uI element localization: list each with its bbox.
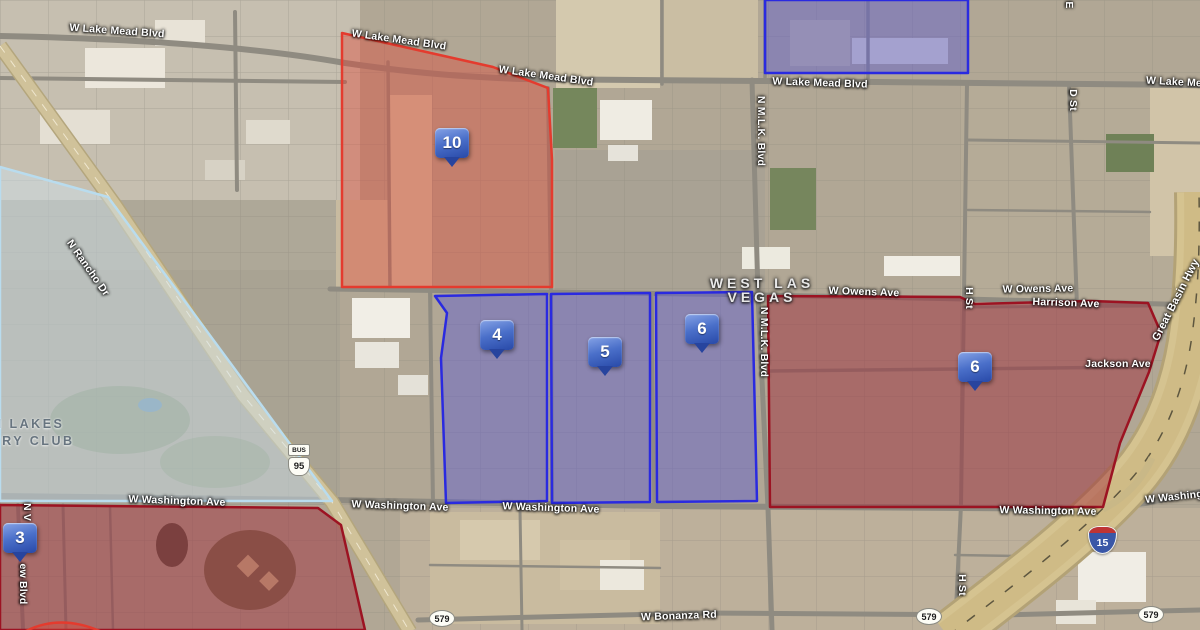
region-overlay-blue-5[interactable] <box>551 293 650 503</box>
us-route-95-shield: 95 <box>288 457 310 476</box>
map-marker-4[interactable]: 4 <box>480 320 514 350</box>
route-579-shield: 579 <box>916 608 942 625</box>
region-overlay-darkred-southwest[interactable] <box>0 505 365 630</box>
bus-95-shield: BUS 95 <box>288 444 310 476</box>
map-viewport[interactable]: W Lake Mead Blvd W Lake Mead Blvd W Lake… <box>0 0 1200 630</box>
map-marker-5[interactable]: 5 <box>588 337 622 367</box>
region-overlay-darkred-east[interactable] <box>768 296 1161 507</box>
route-579-shield: 579 <box>1138 606 1164 623</box>
map-marker-10[interactable]: 10 <box>435 128 469 158</box>
bus-banner: BUS <box>288 444 310 456</box>
region-overlay-blue-top[interactable] <box>765 0 968 73</box>
map-marker-6-blue[interactable]: 6 <box>685 314 719 344</box>
map-marker-3[interactable]: 3 <box>3 523 37 553</box>
interstate-shield-band <box>1089 527 1116 533</box>
route-579-shield: 579 <box>429 610 455 627</box>
interstate-shield-number: 15 <box>1097 537 1109 549</box>
map-marker-6-red[interactable]: 6 <box>958 352 992 382</box>
satellite-basemap <box>0 0 1200 630</box>
